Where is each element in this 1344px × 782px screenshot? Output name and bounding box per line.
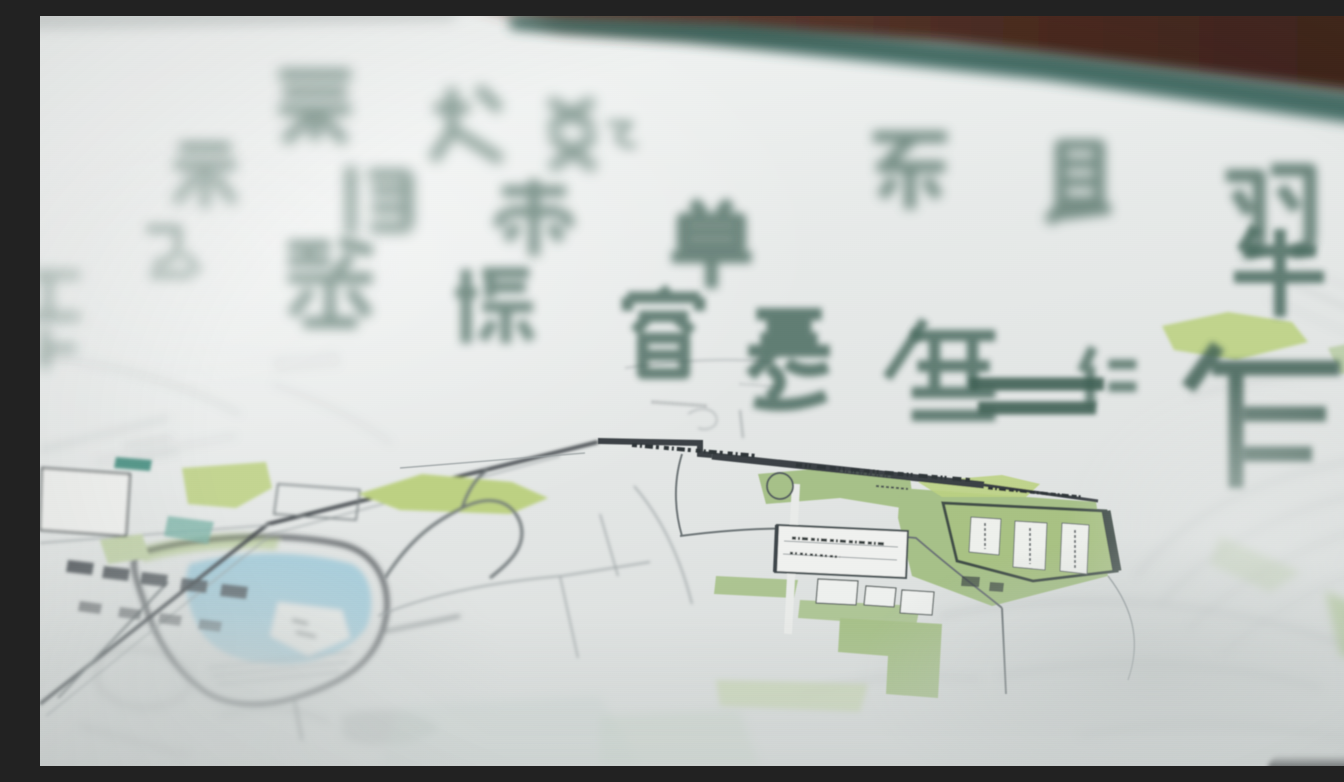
building-a [775,525,908,578]
photo-master-plan: Close-up photograph of a printed urban m… [40,16,1344,766]
green-patch [182,462,272,508]
site-plan-sharp [400,441,1134,698]
title-glyph [672,202,752,288]
illegible-road-marks [632,445,758,456]
green-patch [358,474,548,514]
title-glyph [351,166,410,235]
title-glyph [174,147,236,208]
title-glyph [288,242,372,323]
title-glyph [1226,170,1310,253]
title-glyph [279,74,351,141]
title-glyph [627,288,699,374]
title-glyph [45,327,76,369]
title-glyphs [40,74,1340,488]
title-glyph [748,314,830,405]
title-glyph [497,179,571,255]
green-patch [1162,312,1308,360]
teal-patch [114,457,152,471]
teal-patch [164,516,214,544]
title-glyph [1048,145,1110,222]
title-glyph [40,275,80,317]
title-glyph-dark [1188,346,1340,488]
main-road [598,441,712,455]
building-block [40,468,130,536]
title-glyph [147,229,200,275]
map-context-blurred [40,266,1344,766]
plan-scene [40,16,1344,766]
title-glyph [433,88,502,160]
title-glyph [608,124,637,146]
title-glyph [1082,348,1137,407]
dark-object-corner [1268,755,1344,766]
title-glyph [549,101,595,169]
title-glyph [455,267,532,343]
title-glyph [873,137,947,209]
